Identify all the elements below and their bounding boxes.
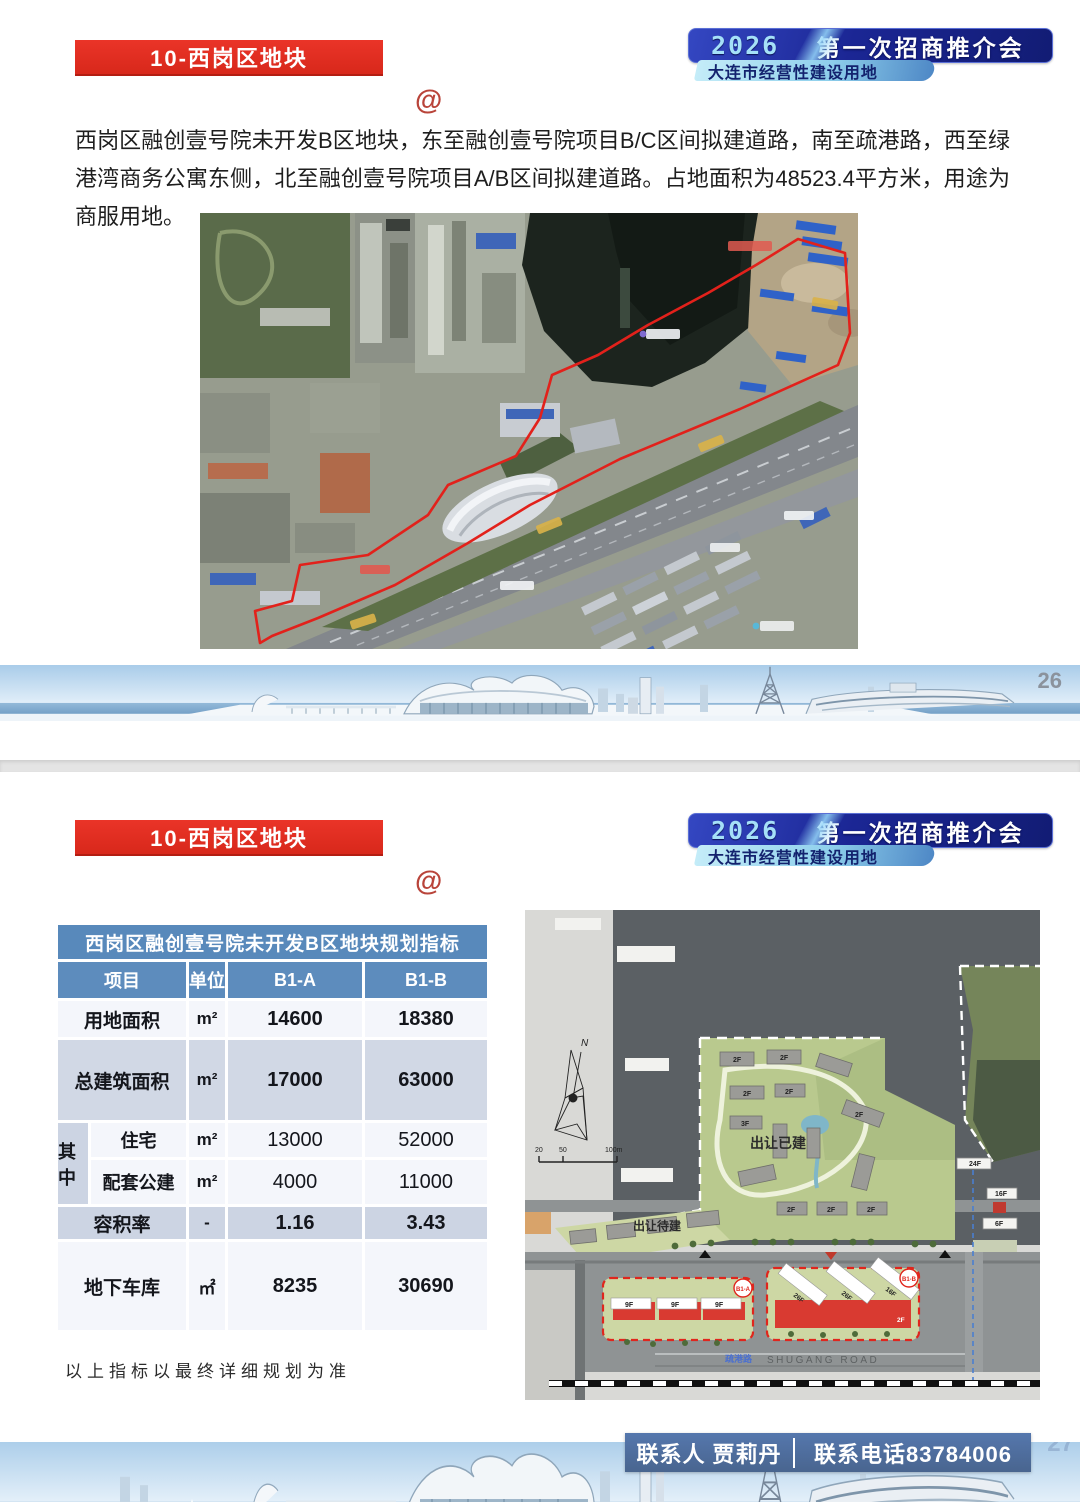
- col-header-unit: 单位: [189, 962, 225, 998]
- slide-1: 10-西岗区地块 2026 第一次招商推介会 大连市经营性建设用地 @ 西岗区融…: [0, 0, 1080, 755]
- row-residential-name: 住宅: [91, 1123, 186, 1157]
- label-sold-built: 出让已建: [750, 1135, 806, 1151]
- page-number: 26: [1038, 668, 1062, 694]
- row-public-b1b: 11000: [365, 1160, 487, 1204]
- col-header-item: 项目: [58, 962, 186, 998]
- svg-text:50: 50: [559, 1147, 567, 1154]
- row-residential-b1a: 13000: [228, 1123, 362, 1157]
- row-total-gfa-name: 总建筑面积: [58, 1040, 186, 1120]
- row-garage-unit: ㎡: [189, 1242, 225, 1330]
- skyline-image: [0, 665, 1080, 721]
- badge-subtitle-strip-2: 大连市经营性建设用地: [694, 845, 936, 866]
- svg-text:16F: 16F: [995, 1191, 1008, 1198]
- row-total-gfa-unit: m²: [189, 1040, 225, 1120]
- slide-separator: [0, 760, 1080, 780]
- row-residential-unit: m²: [189, 1123, 225, 1157]
- event-badge-2: 2026 第一次招商推介会 大连市经营性建设用地: [688, 813, 1053, 866]
- badge-year: 2026: [689, 31, 779, 60]
- label-sold-pending: 出让待建: [633, 1218, 682, 1233]
- row-plot-ratio-b1b: 3.43: [365, 1207, 487, 1239]
- col-header-b1a: B1-A: [228, 962, 362, 998]
- svg-text:2F: 2F: [855, 1112, 864, 1119]
- row-residential-b1b: 52000: [365, 1123, 487, 1157]
- svg-text:2F: 2F: [897, 1317, 905, 1324]
- row-public-unit: m²: [189, 1160, 225, 1204]
- disclaimer-note: 以上指标以最终详细规划为准: [65, 1357, 351, 1382]
- row-plot-ratio-name: 容积率: [58, 1207, 186, 1239]
- event-badge-main-2: 2026 第一次招商推介会: [688, 813, 1053, 848]
- event-badge: 2026 第一次招商推介会 大连市经营性建设用地: [688, 28, 1053, 81]
- svg-text:2F: 2F: [867, 1207, 876, 1214]
- planning-indicator-table: 西岗区融创壹号院未开发B区地块规划指标 项目 单位 B1-A B1-B 用地面积…: [58, 925, 487, 1330]
- page-number-2: 27: [1047, 1442, 1074, 1458]
- slide1-title-banner: 10-西岗区地块: [75, 40, 383, 76]
- svg-text:3F: 3F: [741, 1121, 750, 1128]
- north-label: N: [581, 1038, 589, 1049]
- contact-person: 联系人 贾莉丹: [625, 1437, 793, 1469]
- slide2-title-text: 10-西岗区地块: [150, 821, 308, 853]
- row-public-b1a: 4000: [228, 1160, 362, 1204]
- svg-text:9F: 9F: [625, 1302, 634, 1309]
- svg-text:100m: 100m: [605, 1147, 623, 1154]
- col-header-b1b: B1-B: [365, 962, 487, 998]
- badge-title-2: 第一次招商推介会: [779, 814, 1052, 848]
- row-garage-b1a: 8235: [228, 1242, 362, 1330]
- group-label: 其中: [58, 1123, 88, 1204]
- parcel-b-badge: B1-B: [902, 1277, 917, 1283]
- row-land-area-b1b: 18380: [365, 1001, 487, 1037]
- site-plan-image: 2F 2F 2F 2F 3F 2F 2F 2F 2F 24F 16F 6F 出让…: [525, 910, 1040, 1400]
- svg-text:2F: 2F: [743, 1091, 752, 1098]
- event-badge-main: 2026 第一次招商推介会: [688, 28, 1053, 63]
- row-total-gfa-b1a: 17000: [228, 1040, 362, 1120]
- at-symbol-2: @: [415, 865, 442, 897]
- svg-text:2F: 2F: [787, 1207, 796, 1214]
- row-total-gfa-b1b: 63000: [365, 1040, 487, 1120]
- badge-subtitle-2: 大连市经营性建设用地: [696, 844, 878, 868]
- svg-text:2F: 2F: [733, 1057, 742, 1064]
- at-symbol: @: [415, 84, 442, 116]
- row-garage-b1b: 30690: [365, 1242, 487, 1330]
- table-title: 西岗区融创壹号院未开发B区地块规划指标: [58, 925, 487, 959]
- badge-subtitle: 大连市经营性建设用地: [696, 59, 878, 83]
- slide1-title-text: 10-西岗区地块: [150, 41, 308, 73]
- svg-text:9F: 9F: [671, 1302, 680, 1309]
- svg-text:2F: 2F: [780, 1055, 789, 1062]
- svg-text:2F: 2F: [785, 1089, 794, 1096]
- svg-text:9F: 9F: [715, 1302, 724, 1309]
- slide1-footer-band: 26: [0, 665, 1080, 721]
- svg-text:2F: 2F: [827, 1207, 836, 1214]
- contact-phone: 联系电话83784006: [795, 1437, 1031, 1469]
- slide-2: 10-西岗区地块 2026 第一次招商推介会 大连市经营性建设用地 @ 西岗区融…: [0, 780, 1080, 1502]
- badge-year-2: 2026: [689, 816, 779, 845]
- row-plot-ratio-b1a: 1.16: [228, 1207, 362, 1239]
- badge-title: 第一次招商推介会: [779, 29, 1052, 63]
- svg-text:20: 20: [535, 1147, 543, 1154]
- slide2-title-banner: 10-西岗区地块: [75, 820, 383, 856]
- row-land-area-unit: m²: [189, 1001, 225, 1037]
- parcel-a-badge: B1-A: [736, 1287, 751, 1293]
- satellite-map-image: [200, 213, 858, 649]
- svg-text:6F: 6F: [995, 1221, 1004, 1228]
- row-land-area-name: 用地面积: [58, 1001, 186, 1037]
- road-name-en: SHUGANG ROAD: [767, 1355, 879, 1366]
- road-name-cn: 疏港路: [725, 1353, 753, 1364]
- row-land-area-b1a: 14600: [228, 1001, 362, 1037]
- svg-text:24F: 24F: [969, 1161, 982, 1168]
- contact-bar: 联系人 贾莉丹 联系电话83784006: [625, 1433, 1031, 1472]
- badge-subtitle-strip: 大连市经营性建设用地: [694, 60, 936, 81]
- row-plot-ratio-unit: -: [189, 1207, 225, 1239]
- row-garage-name: 地下车库: [58, 1242, 186, 1330]
- row-public-name: 配套公建: [91, 1160, 186, 1204]
